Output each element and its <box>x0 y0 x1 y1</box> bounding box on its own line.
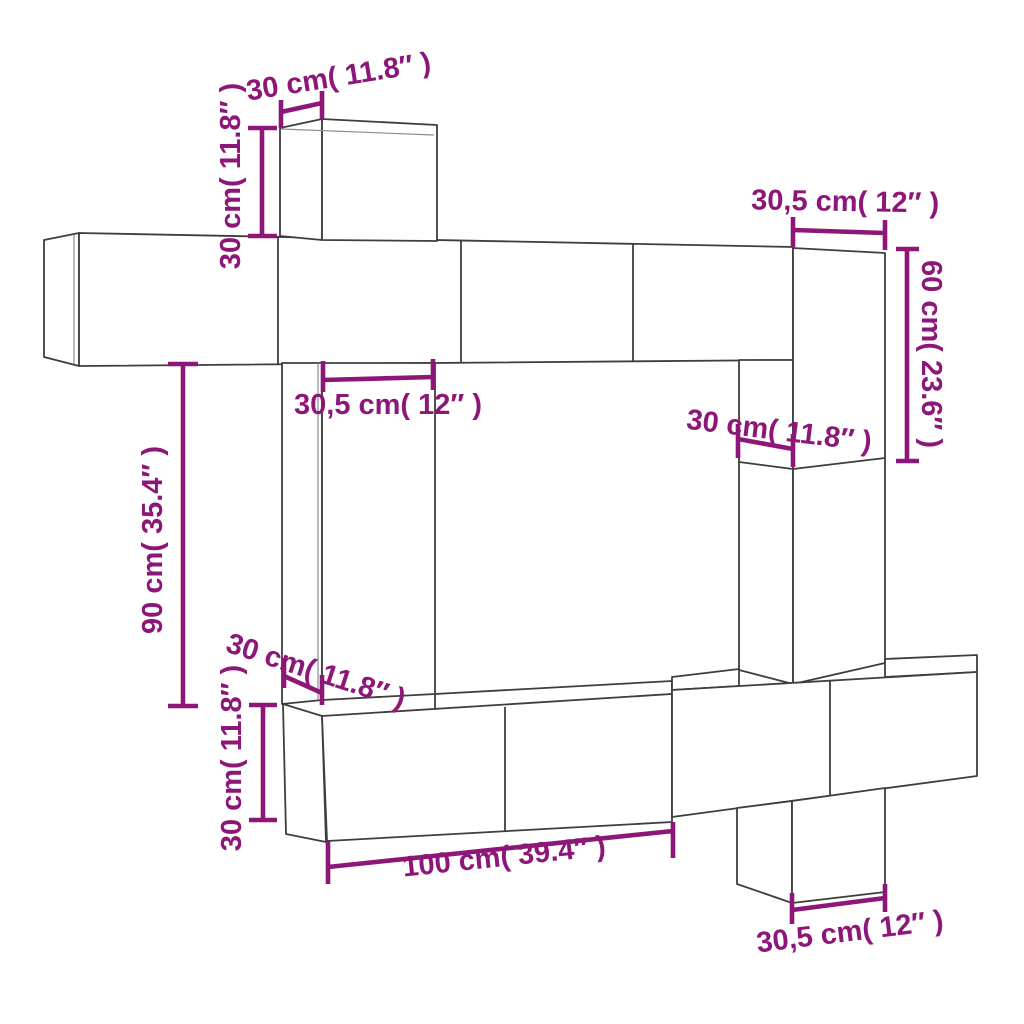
top-cube-front <box>322 119 437 241</box>
hanging-cabinet-front <box>792 788 885 903</box>
dim-label-top-box-depth: 30 cm( 11.8″ ) <box>244 47 433 108</box>
dim-label-right-box-width: 30,5 cm( 12″ ) <box>751 184 940 219</box>
dim-bracket-bottom-cabinet-height <box>249 705 277 820</box>
dim-bracket-top-box-height <box>248 128 277 236</box>
bottom-cabinet-front-left <box>322 694 672 841</box>
right-column-front <box>793 248 885 684</box>
diagram-canvas: 30 cm( 11.8″ ) 30 cm( 11.8″ ) 30,5 cm( 1… <box>0 0 1024 1024</box>
dim-label-top-box-height: 30 cm( 11.8″ ) <box>215 83 247 269</box>
bottom-cabinet-front-right <box>672 672 977 817</box>
dim-right-box-height: 60 cm( 23.6″ ) <box>896 249 947 461</box>
dim-label-bottom-cabinet-height: 30 cm( 11.8″ ) <box>216 665 248 851</box>
dim-label-right-box-height: 60 cm( 23.6″ ) <box>915 260 947 448</box>
dim-bottom-cabinet-height: 30 cm( 11.8″ ) <box>216 665 277 851</box>
dim-bracket-left-column-height <box>168 364 198 706</box>
dim-label-hanging-cabinet-width: 30,5 cm( 12″ ) <box>755 905 945 960</box>
upper-cabinet-front <box>79 233 793 366</box>
dim-label-left-column-width: 30,5 cm( 12″ ) <box>294 389 482 421</box>
top-cube-side <box>280 119 322 240</box>
dim-bracket-right-box-width <box>793 217 885 250</box>
dim-left-column-height: 90 cm( 35.4″ ) <box>137 364 198 706</box>
dim-top-box-depth: 30 cm( 11.8″ ) <box>244 47 433 128</box>
bottom-cabinet-end-cap <box>283 704 326 842</box>
dim-label-left-column-height: 90 cm( 35.4″ ) <box>137 446 169 634</box>
dim-label-tv-bench-width: 100 cm( 39.4″ ) <box>401 830 607 883</box>
furniture-dimension-diagram: 30 cm( 11.8″ ) 30 cm( 11.8″ ) 30,5 cm( 1… <box>0 0 1024 1024</box>
dim-right-box-width: 30,5 cm( 12″ ) <box>751 184 940 250</box>
hanging-cabinet-side <box>737 801 792 903</box>
right-column-side <box>739 360 793 684</box>
